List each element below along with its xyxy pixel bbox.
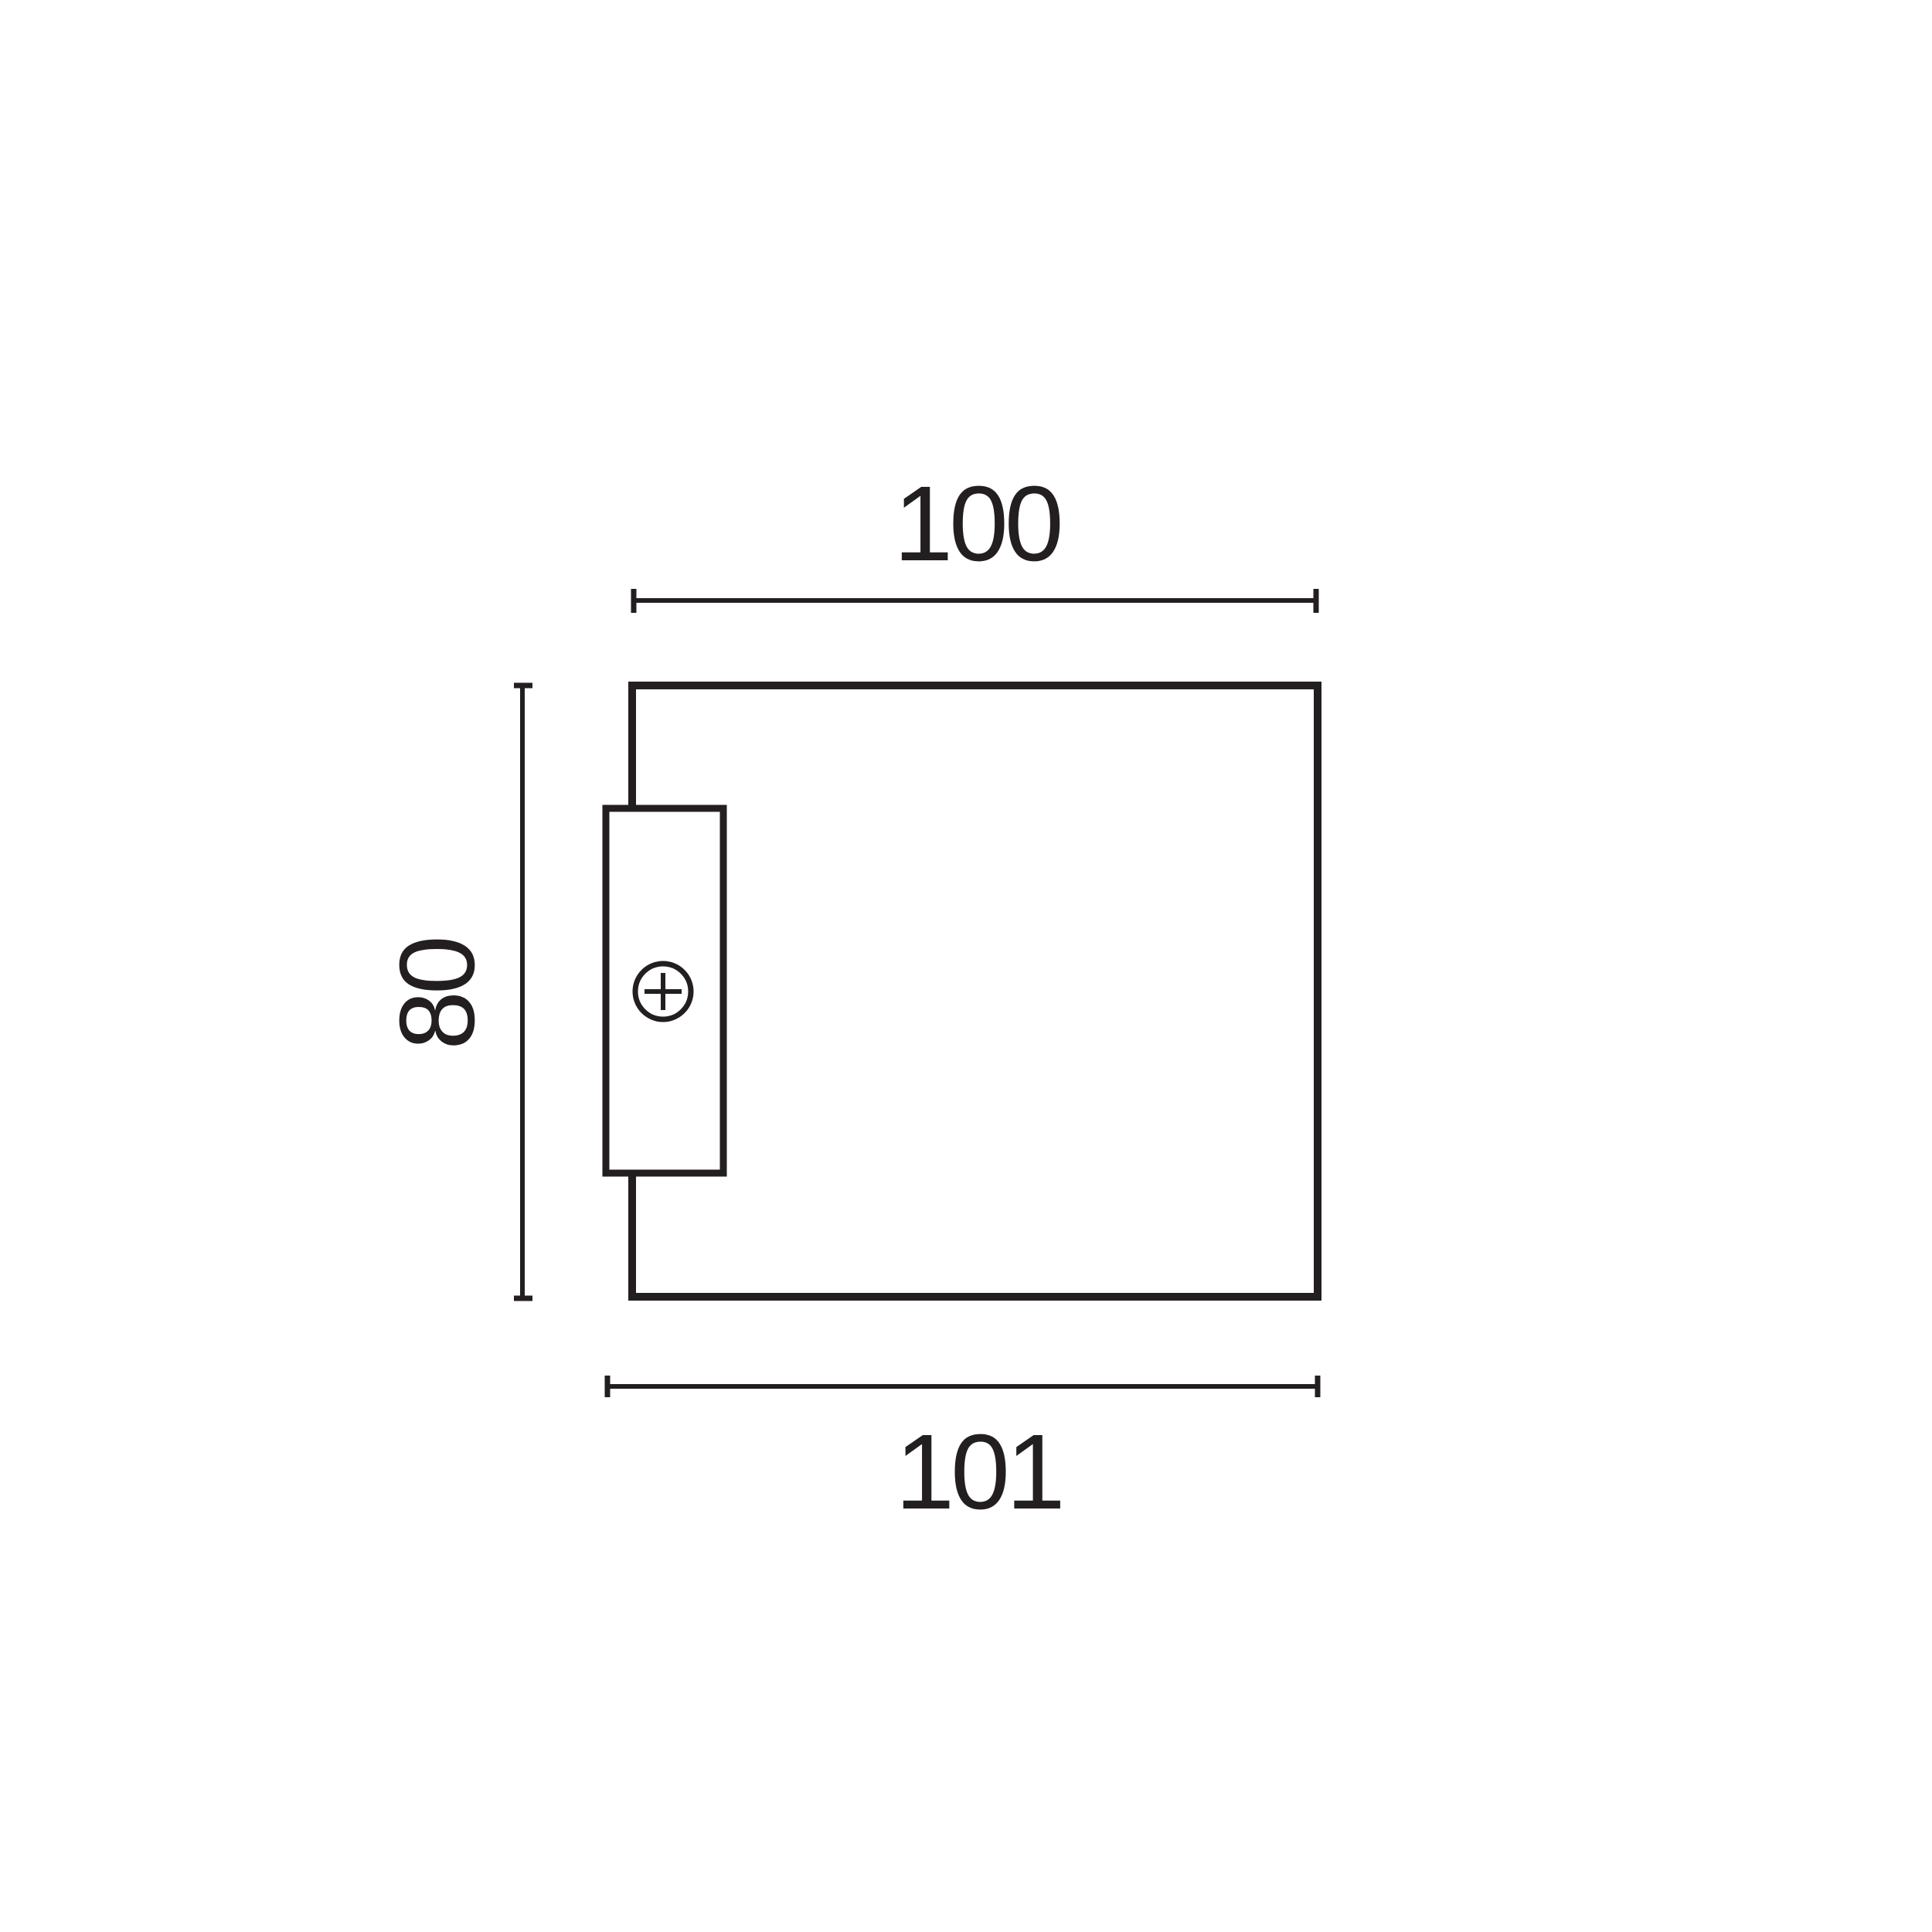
top-dimension: 100 (634, 464, 1316, 613)
bottom-dimension-label: 101 (895, 1413, 1061, 1532)
product-body-outline (632, 685, 1318, 1297)
top-dimension-label: 100 (893, 464, 1060, 583)
left-dimension-label: 80 (378, 939, 497, 1050)
technical-dimension-drawing: 100 80 101 (0, 0, 1932, 1932)
left-dimension: 80 (378, 685, 532, 1298)
dimension-drawing-canvas: 100 80 101 (0, 0, 1932, 1932)
bottom-dimension: 101 (607, 1376, 1318, 1532)
